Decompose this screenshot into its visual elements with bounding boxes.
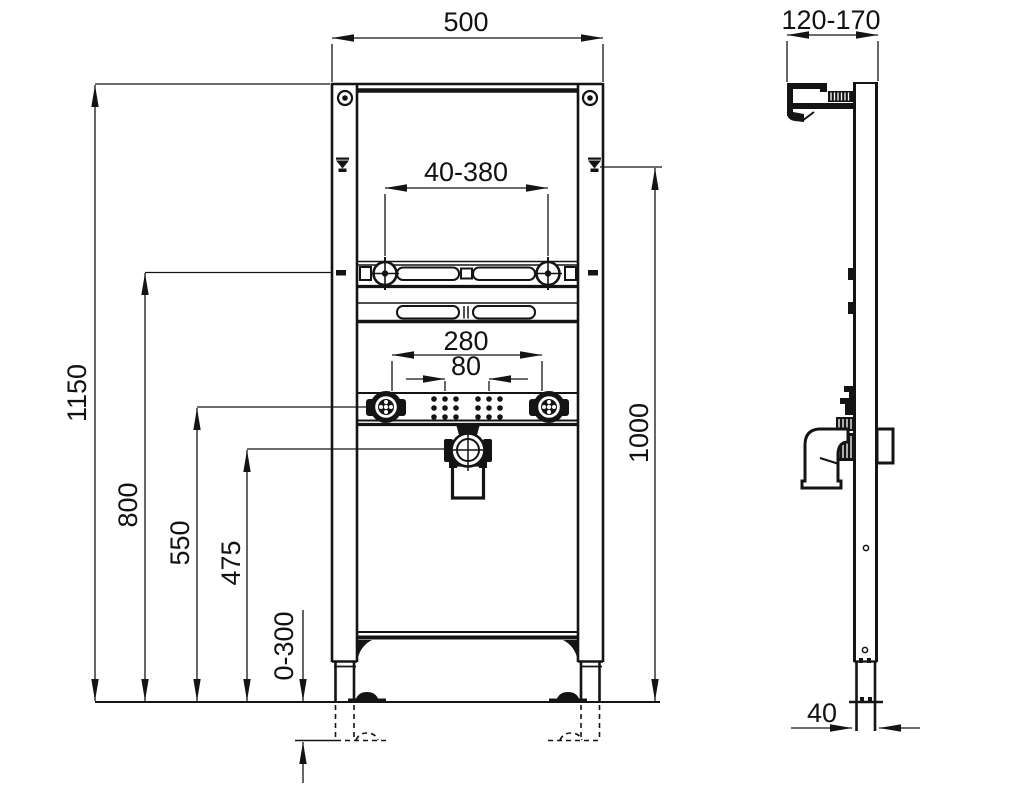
dim-frame-height-lines [95, 84, 330, 701]
drain-assembly [444, 424, 492, 498]
wall-bracket [787, 83, 853, 122]
water-connection-left [366, 391, 406, 423]
dim-hole-spacing: 80 [451, 351, 481, 381]
washbasin-frame-drawing: 500 40-380 280 80 1150 800 550 475 0-300… [0, 0, 1024, 810]
dim-profile-depth: 40 [807, 698, 837, 728]
water-connection-right [529, 391, 569, 423]
dim-wall-distance: 120-170 [781, 5, 880, 35]
dim-wall-distance-lines [787, 35, 878, 82]
dim-upper-fixing-height: 1000 [624, 403, 654, 463]
dim-frame-height: 1150 [62, 364, 92, 422]
tap-hole-group-right [475, 396, 503, 420]
dim-fixing-range-lines [385, 188, 548, 256]
top-bolt-holes [338, 91, 597, 105]
dimension-labels: 500 40-380 280 80 1150 800 550 475 0-300… [62, 5, 881, 728]
tap-hole-group-left [431, 396, 459, 420]
upper-fixing-rail [357, 257, 578, 290]
dim-fixing-range: 40-380 [424, 157, 508, 187]
side-column [848, 83, 878, 662]
bottom-rail [357, 632, 578, 661]
dim-overall-width: 500 [443, 7, 488, 37]
dimension-lines [95, 35, 920, 783]
second-rail [357, 303, 578, 322]
dim-overall-width-lines [332, 38, 603, 82]
technical-drawing-sheet: 500 40-380 280 80 1150 800 550 475 0-300… [0, 0, 1024, 810]
tap-rail [357, 391, 578, 425]
side-view [787, 83, 893, 731]
dim-tap-rail-height: 550 [165, 520, 195, 565]
dim-crossbar-height-lines [145, 273, 332, 702]
side-drain-and-fittings [802, 386, 893, 488]
dim-drain-height: 475 [216, 540, 246, 585]
front-view [95, 83, 660, 741]
dim-crossbar-height: 800 [113, 482, 143, 527]
dim-foot-adjust: 0-300 [269, 611, 299, 680]
side-foot [849, 658, 883, 731]
threaded-rod [828, 91, 853, 102]
mounting-box [877, 429, 893, 463]
